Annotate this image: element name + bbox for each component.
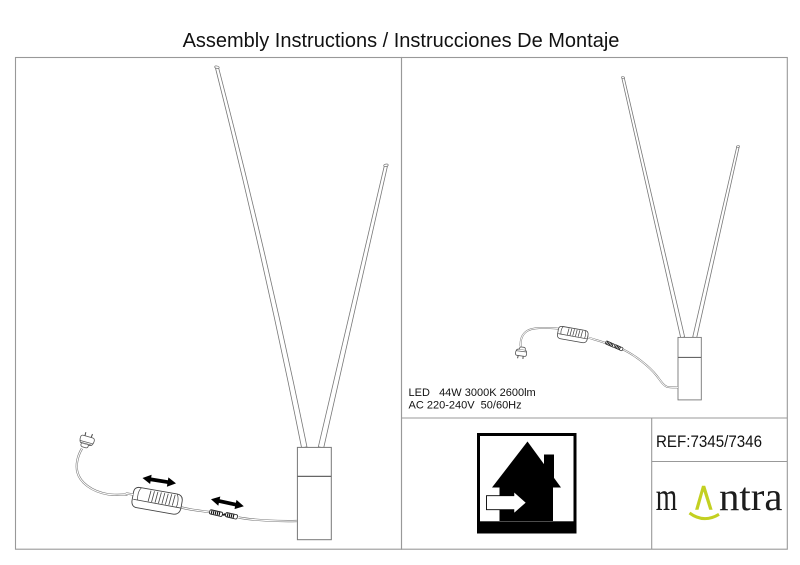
svg-text:Assembly Instructions / Instru: Assembly Instructions / Instrucciones De… — [183, 30, 620, 52]
svg-text:AC 220-240V 50/60Hz: AC 220-240V 50/60Hz — [409, 399, 522, 411]
svg-text:REF:7345/7346: REF:7345/7346 — [656, 433, 762, 451]
svg-text:LED 44W 3000K 2600lm: LED 44W 3000K 2600lm — [409, 387, 536, 399]
svg-text:ntra: ntra — [719, 474, 783, 519]
svg-text:m: m — [656, 474, 678, 519]
